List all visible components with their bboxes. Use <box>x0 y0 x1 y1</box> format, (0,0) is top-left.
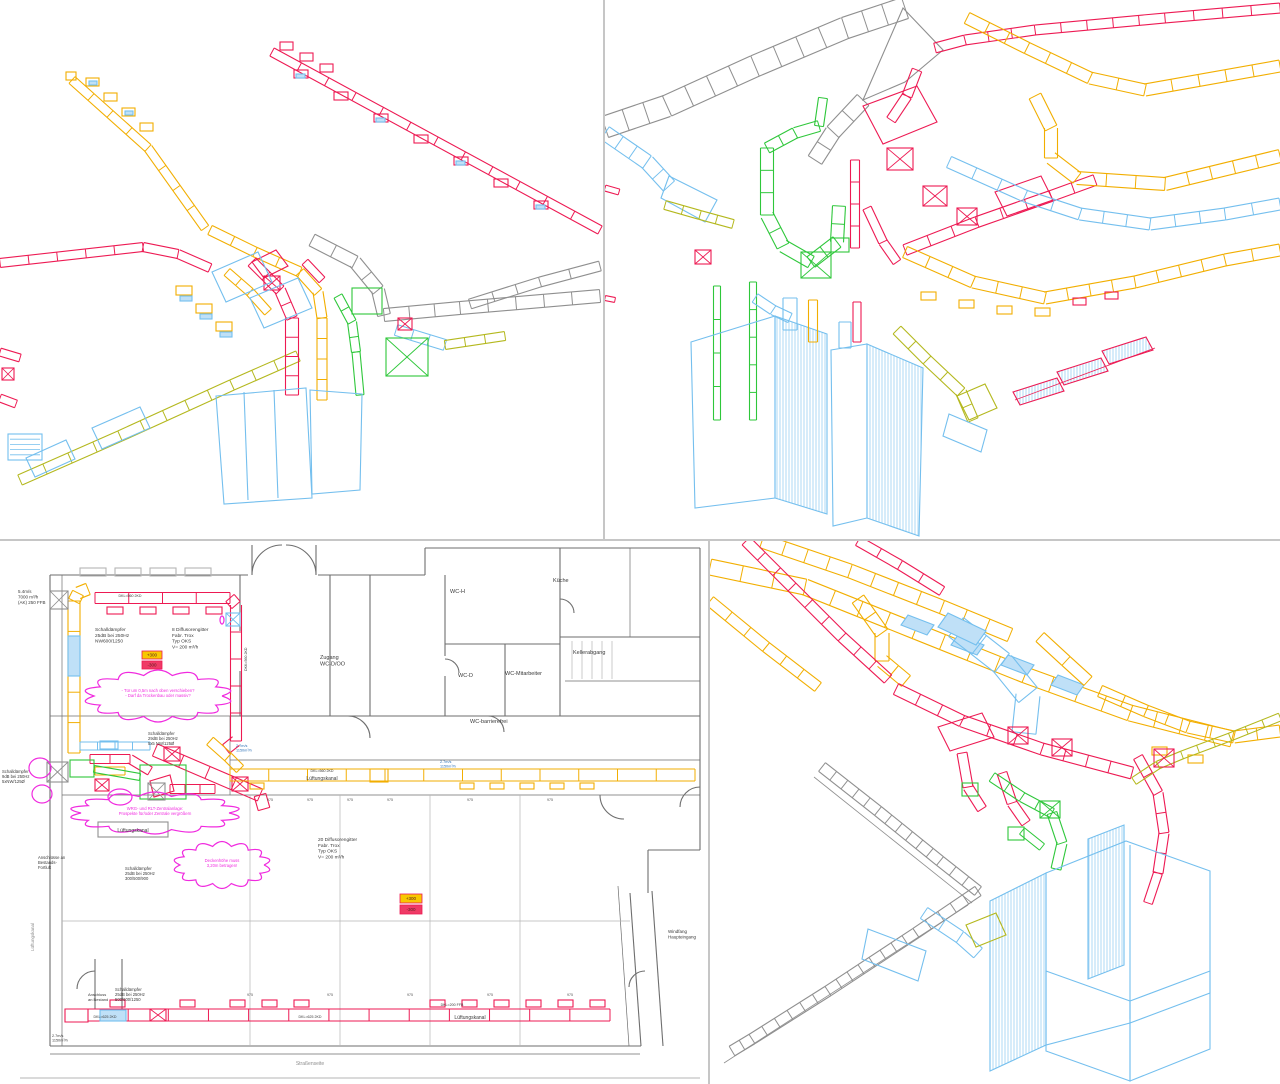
duct-joint <box>857 95 869 106</box>
duct-joint <box>947 157 952 168</box>
duct-joint <box>281 302 291 306</box>
duct-joint <box>815 683 822 692</box>
duct-joint <box>763 643 770 652</box>
duct-run <box>75 77 151 145</box>
duct-joint <box>1193 11 1194 21</box>
duct-joint <box>940 372 948 380</box>
duct-joint <box>107 111 113 118</box>
duct-joint <box>652 169 663 179</box>
iso-overview-drawing <box>0 0 603 539</box>
duct-run <box>893 694 959 726</box>
duct-joint <box>882 4 889 25</box>
duct-joint <box>841 780 848 789</box>
duct-joint <box>699 211 701 220</box>
duct-joint <box>1251 249 1253 261</box>
duct-run <box>69 590 73 598</box>
duct-joint <box>706 76 715 96</box>
duct-joint <box>827 127 839 138</box>
duct-run <box>384 288 390 313</box>
label: 8 DiffusorengitterFabr. TroxTyp OKSV= 20… <box>172 627 209 650</box>
label: Lüftungskanal <box>306 776 337 782</box>
duct-joint <box>1036 633 1044 642</box>
duct-run <box>825 928 913 986</box>
duct-joint <box>15 400 18 407</box>
duct-joint <box>739 1040 745 1049</box>
duct-run <box>975 191 1049 217</box>
duct-joint <box>684 86 693 106</box>
duct-joint <box>270 48 274 56</box>
duct-box <box>180 1000 195 1007</box>
duct-run <box>323 291 327 317</box>
duct-joint <box>916 840 923 849</box>
duct-box <box>526 1000 541 1007</box>
duct-shape <box>1130 971 1210 1081</box>
duct-run <box>606 185 620 189</box>
duct-joint <box>903 93 911 99</box>
duct-joint <box>963 786 973 788</box>
duct-joint <box>957 752 967 754</box>
duct-joint <box>1198 74 1200 86</box>
duct-joint <box>875 807 882 816</box>
duct-joint <box>740 566 743 582</box>
duct-joint <box>715 215 717 224</box>
duct-joint <box>832 224 845 225</box>
duct-joint <box>605 185 606 191</box>
label: 5.4m/s7000 m³/h(AK) 250 FFB <box>18 589 46 605</box>
iso-detail-upper-drawing <box>605 0 1280 539</box>
duct-joint <box>1210 726 1213 738</box>
duct-joint <box>893 259 900 264</box>
duct-joint <box>489 167 493 175</box>
duct-joint <box>1224 208 1226 220</box>
duct-joint <box>1019 687 1038 702</box>
duct-joint <box>819 763 826 772</box>
floor-plan-drawing: 5.4m/s7000 m³/h(AK) 250 FFBSchalldämpfer… <box>0 541 708 1084</box>
viewport-iso-detail-lower[interactable] <box>710 541 1280 1084</box>
duct-joint <box>773 568 781 576</box>
duct-box <box>68 636 80 676</box>
duct-run <box>1156 751 1180 761</box>
duct-joint <box>461 152 465 160</box>
duct-run <box>76 583 86 587</box>
duct-shape <box>250 278 312 328</box>
duct-joint <box>777 243 789 249</box>
duct-box <box>200 314 212 319</box>
label: 975 <box>387 798 393 802</box>
duct-joint <box>1062 657 1070 666</box>
duct-joint <box>1020 287 1023 299</box>
duct-joint <box>1144 705 1149 716</box>
duct-joint <box>1222 8 1223 18</box>
duct-run <box>383 302 459 309</box>
duct-run <box>831 938 919 996</box>
duct-run <box>308 259 325 277</box>
label: 975 <box>407 993 413 997</box>
duct-joint <box>774 1018 780 1027</box>
label: Anschlussan Bestand <box>88 992 108 1002</box>
duct-run <box>1077 172 1165 178</box>
duct-joint <box>1179 265 1182 277</box>
duct-shape <box>310 390 362 494</box>
duct-joint <box>258 807 270 810</box>
duct-joint <box>571 211 575 219</box>
duct-run <box>860 541 902 561</box>
duct-joint <box>1199 211 1201 223</box>
duct-box <box>140 607 156 614</box>
duct-joint <box>1132 778 1136 785</box>
duct-run <box>1024 53 1087 83</box>
duct-joint <box>114 246 115 255</box>
duct-joint <box>833 206 846 207</box>
duct-joint <box>1134 755 1143 760</box>
label: Küche <box>553 578 569 584</box>
duct-joint <box>275 257 279 266</box>
duct-joint <box>207 737 214 744</box>
label: WC-D <box>458 673 473 679</box>
viewport-iso-overview[interactable] <box>0 0 603 539</box>
duct-joint <box>643 156 652 168</box>
duct-joint <box>948 267 953 278</box>
duct-joint <box>664 201 666 210</box>
wall-line <box>1015 348 1155 400</box>
duct-joint <box>902 676 911 687</box>
label: 975 <box>467 798 473 802</box>
duct-run <box>1047 163 1073 183</box>
duct-box <box>490 783 504 789</box>
label: Straßenseite <box>296 1061 325 1067</box>
duct-joint <box>185 400 190 410</box>
duct-run <box>1044 743 1134 767</box>
duct-joint <box>826 557 831 570</box>
duct-run <box>1029 99 1045 131</box>
duct-joint <box>964 35 967 45</box>
label: WC-barrierefrei <box>470 719 508 725</box>
pressure-badge-value: -300 <box>147 663 157 668</box>
duct-run <box>372 292 378 317</box>
duct-shape <box>831 344 867 526</box>
duct-run <box>142 251 177 258</box>
duct-joint <box>1078 208 1082 219</box>
duct-run <box>360 352 364 395</box>
duct-box <box>66 72 76 80</box>
label: WC-Mitarbeiter <box>505 671 542 677</box>
duct-joint <box>1071 183 1075 193</box>
wall-line <box>652 891 663 1046</box>
duct-run <box>1229 713 1279 733</box>
duct-joint <box>903 247 908 258</box>
duct-run <box>819 771 875 815</box>
duct-box <box>921 292 936 300</box>
duct-run <box>970 13 1030 43</box>
duct-joint <box>504 332 505 341</box>
duct-joint <box>887 117 895 123</box>
duct-joint <box>1149 218 1151 230</box>
label: ZugangWC-D/OO <box>320 655 346 668</box>
door-arc <box>445 659 459 673</box>
duct-run <box>823 99 827 127</box>
duct-joint <box>0 394 1 401</box>
duct-joint <box>1139 15 1140 25</box>
duct-joint <box>937 705 942 716</box>
viewport-floor-plan[interactable]: 5.4m/s7000 m³/h(AK) 250 FFBSchalldämpfer… <box>0 541 708 1084</box>
duct-run <box>1079 220 1149 230</box>
duct-joint <box>487 299 488 312</box>
wall-line <box>274 390 278 498</box>
duct-joint <box>253 248 257 257</box>
label: DKL=625 2KD <box>93 1015 116 1019</box>
duct-shape <box>661 176 717 222</box>
duct-joint <box>205 767 210 779</box>
duct-run <box>1146 72 1280 96</box>
duct-run <box>1132 762 1156 778</box>
label: 2.7m/s1150m³/h <box>440 760 456 769</box>
duct-joint <box>492 292 495 302</box>
label: 975 <box>307 798 313 802</box>
duct-joint <box>1225 70 1227 82</box>
duct-joint <box>159 165 166 170</box>
duct-joint <box>411 330 414 341</box>
duct-joint <box>1045 53 1050 64</box>
duct-shape <box>1051 675 1084 695</box>
duct-run <box>1128 721 1230 747</box>
duct-joint <box>989 773 995 781</box>
duct-joint <box>1144 84 1147 96</box>
duct-joint <box>1066 63 1071 74</box>
duct-joint <box>571 292 572 305</box>
duct-joint <box>862 11 869 32</box>
duct-joint <box>962 877 969 886</box>
duct-joint <box>856 541 861 545</box>
duct-joint <box>1127 705 1132 720</box>
duct-run <box>1020 834 1040 850</box>
duct-joint <box>516 182 520 190</box>
duct-joint <box>710 559 712 575</box>
label: 975 <box>267 798 273 802</box>
duct-run <box>446 340 506 349</box>
duct-shape <box>26 440 75 477</box>
duct-box <box>456 161 465 165</box>
duct-box <box>462 1000 477 1007</box>
duct-box <box>300 53 313 61</box>
duct-joint <box>230 237 234 246</box>
duct-run <box>664 209 699 219</box>
duct-box <box>180 296 192 301</box>
duct-run <box>775 305 792 313</box>
duct-joint <box>1004 33 1009 44</box>
duct-joint <box>870 573 875 586</box>
duct-joint <box>1045 125 1057 131</box>
duct-joint <box>925 257 930 268</box>
duct-run <box>1040 755 1130 779</box>
duct-shape <box>1057 358 1108 385</box>
duct-joint <box>997 179 1002 190</box>
duct-joint <box>274 361 278 371</box>
label: DKL=625 2KD <box>298 1015 321 1019</box>
duct-joint <box>1116 78 1119 90</box>
duct-joint <box>1029 93 1041 99</box>
duct-joint <box>1262 720 1265 727</box>
duct-run <box>609 127 651 156</box>
duct-box <box>196 304 212 313</box>
duct-run <box>974 276 1046 292</box>
duct-joint <box>341 307 349 311</box>
duct-joint <box>599 261 602 271</box>
duct-run <box>770 138 798 153</box>
duct-shape <box>901 615 934 635</box>
duct-run <box>972 784 986 806</box>
duct-joint <box>599 290 600 303</box>
duct-joint <box>73 590 84 595</box>
duct-joint <box>1134 276 1136 288</box>
duct-joint <box>325 78 329 86</box>
duct-run <box>118 380 230 431</box>
duct-joint <box>177 250 179 259</box>
duct-joint <box>302 259 308 264</box>
duct-run <box>871 206 887 240</box>
duct-run <box>951 157 1027 191</box>
duct-joint <box>1007 629 1012 642</box>
duct-run <box>1144 60 1279 84</box>
duct-joint <box>1108 761 1111 773</box>
duct-run <box>972 288 1044 304</box>
duct-joint <box>352 93 356 101</box>
duct-joint <box>148 767 153 775</box>
duct-joint <box>1024 43 1029 54</box>
duct-shape <box>867 344 923 536</box>
duct-joint <box>539 277 542 287</box>
duct-joint <box>88 94 94 101</box>
duct-joint <box>615 298 616 303</box>
duct-run <box>605 191 618 195</box>
duct-joint <box>898 561 903 570</box>
duct-joint <box>879 240 887 244</box>
duct-run <box>1136 266 1226 288</box>
duct-shape <box>691 316 775 508</box>
duct-joint <box>0 259 1 268</box>
duct-joint <box>93 442 97 452</box>
duct-box <box>176 286 192 295</box>
duct-box <box>262 1000 277 1007</box>
duct-joint <box>782 542 787 555</box>
door-arc <box>600 795 624 819</box>
duct-joint <box>819 97 828 98</box>
duct-joint <box>1154 712 1158 728</box>
duct-joint <box>1057 841 1066 844</box>
duct-shape <box>1046 841 1210 1045</box>
label: 2.7m/s1150m³/h <box>52 1034 68 1043</box>
label: 975 <box>347 798 353 802</box>
revision-ellipse <box>32 785 52 803</box>
duct-joint <box>927 236 931 246</box>
duct-joint <box>1135 176 1136 189</box>
duct-joint <box>622 110 629 131</box>
revision-ellipse <box>220 616 224 624</box>
duct-run <box>1081 208 1151 218</box>
duct-joint <box>817 142 830 151</box>
door-arc <box>77 971 95 989</box>
label: 2.7m/s1150m³/h <box>236 744 252 753</box>
duct-joint <box>85 249 86 258</box>
duct-box <box>352 288 382 314</box>
duct-joint <box>1089 284 1091 296</box>
duct-run <box>0 356 19 362</box>
duct-joint <box>1201 260 1204 272</box>
duct-run <box>943 857 981 887</box>
duct-joint <box>309 234 315 246</box>
duct-joint <box>1154 791 1163 796</box>
duct-joint <box>787 1010 793 1019</box>
duct-run <box>967 752 973 786</box>
duct-run <box>1008 806 1022 826</box>
duct-joint <box>484 335 485 344</box>
duct-joint <box>749 1034 755 1043</box>
duct-joint <box>939 587 944 596</box>
duct-joint <box>950 903 956 912</box>
duct-joint <box>201 225 208 230</box>
duct-shape <box>1088 825 1124 979</box>
duct-run <box>471 287 541 309</box>
revision-ellipse <box>29 758 51 778</box>
duct-joint <box>18 475 22 485</box>
duct-box <box>580 783 594 789</box>
duct-joint <box>0 348 1 356</box>
duct-box <box>1008 827 1024 840</box>
duct-run <box>79 596 83 604</box>
duct-run <box>1035 13 1165 25</box>
duct-joint <box>314 289 321 296</box>
duct-run <box>848 18 908 38</box>
door-arc <box>252 545 282 575</box>
duct-joint <box>1171 79 1173 91</box>
duct-joint <box>232 601 240 608</box>
duct-run <box>1134 254 1224 276</box>
duct-joint <box>978 806 986 811</box>
duct-joint <box>937 857 944 866</box>
duct-joint <box>1209 166 1212 179</box>
duct-run <box>903 217 975 245</box>
duct-joint <box>997 771 1006 774</box>
duct-box <box>536 205 545 209</box>
duct-joint <box>224 269 230 276</box>
duct-run <box>1 251 144 267</box>
duct-shape <box>775 316 827 514</box>
label: WindfangHaupteingang <box>668 929 697 939</box>
duct-joint <box>926 848 933 857</box>
label: Schalldämpfer25dB bei 250Hz500/600/1250 <box>115 987 145 1002</box>
duct-run <box>313 293 317 319</box>
duct-run <box>897 569 939 595</box>
duct-joint <box>863 798 870 807</box>
duct-joint <box>1165 713 1169 724</box>
duct-joint <box>742 541 750 545</box>
duct-joint <box>1087 73 1092 84</box>
duct-joint <box>1073 173 1081 183</box>
duct-joint <box>918 574 923 583</box>
duct-joint <box>173 185 180 190</box>
door-arc <box>680 787 700 807</box>
duct-joint <box>319 277 325 282</box>
label: DKK=560 2KD <box>244 647 248 671</box>
viewport-iso-detail-upper[interactable] <box>605 0 1280 539</box>
duct-shape <box>863 8 943 100</box>
duct-box <box>831 238 849 252</box>
duct-shape <box>92 407 150 449</box>
duct-run <box>605 300 615 302</box>
duct-joint <box>908 341 916 349</box>
duct-box <box>376 118 385 122</box>
duct-joint <box>884 675 891 683</box>
duct-run <box>878 666 902 686</box>
